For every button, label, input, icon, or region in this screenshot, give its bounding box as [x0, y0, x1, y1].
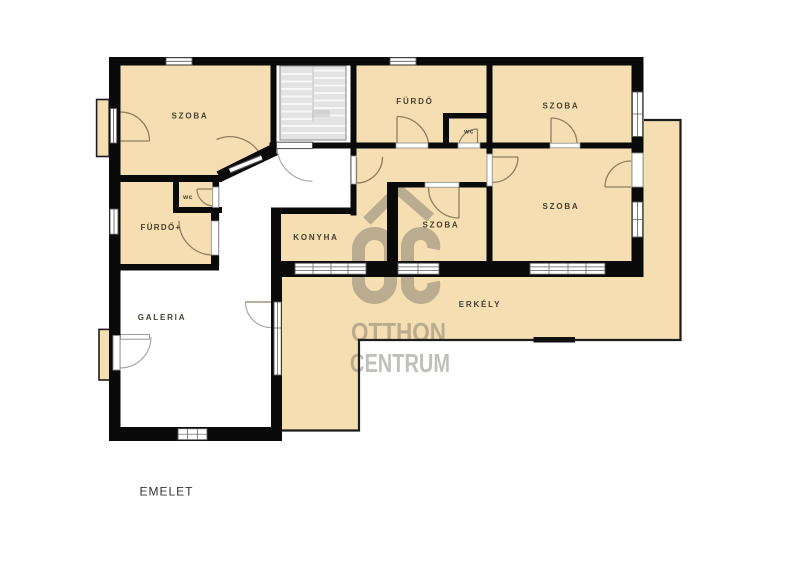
svg-text:CENTRUM: CENTRUM — [350, 348, 450, 378]
svg-text:OTTHON: OTTHON — [351, 317, 446, 347]
svg-text:SZOBA: SZOBA — [543, 202, 580, 211]
svg-text:FÜRDŐ: FÜRDŐ — [396, 97, 433, 106]
svg-text:FÜRDŐ+: FÜRDŐ+ — [141, 223, 182, 232]
svg-text:wc: wc — [463, 129, 474, 136]
svg-text:SZOBA: SZOBA — [172, 112, 209, 121]
svg-text:GALERIA: GALERIA — [138, 313, 187, 322]
svg-text:EMELET: EMELET — [140, 485, 194, 499]
svg-text:KONYHA: KONYHA — [293, 233, 338, 242]
svg-text:ERKÉLY: ERKÉLY — [459, 300, 502, 309]
svg-text:SZOBA: SZOBA — [423, 221, 460, 230]
svg-text:wc: wc — [182, 194, 193, 201]
svg-text:SZOBA: SZOBA — [543, 102, 580, 111]
